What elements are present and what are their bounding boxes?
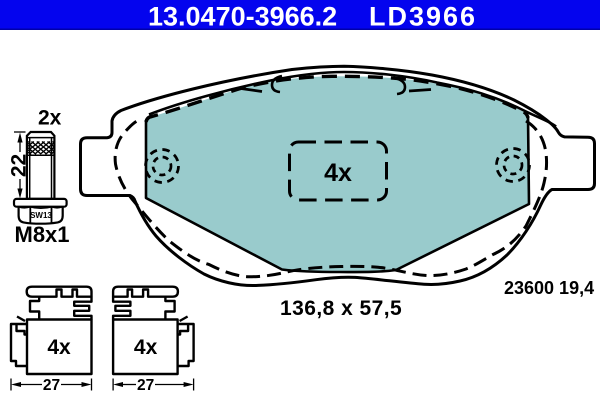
svg-text:M8x1: M8x1 [15,222,70,247]
svg-text:SW13: SW13 [30,211,52,220]
svg-text:4x: 4x [134,336,158,359]
svg-text:4x: 4x [324,159,352,187]
svg-text:23600 19,4: 23600 19,4 [504,278,594,298]
svg-text:13.0470-3966.2: 13.0470-3966.2 [148,2,337,32]
svg-text:136,8 x 57,5: 136,8 x 57,5 [280,297,402,320]
svg-text:4x: 4x [47,336,71,359]
svg-text:27: 27 [43,377,60,394]
svg-text:2x: 2x [38,107,62,130]
svg-text:27: 27 [137,377,154,394]
svg-text:LD3966: LD3966 [369,2,477,32]
svg-text:22: 22 [8,154,31,177]
